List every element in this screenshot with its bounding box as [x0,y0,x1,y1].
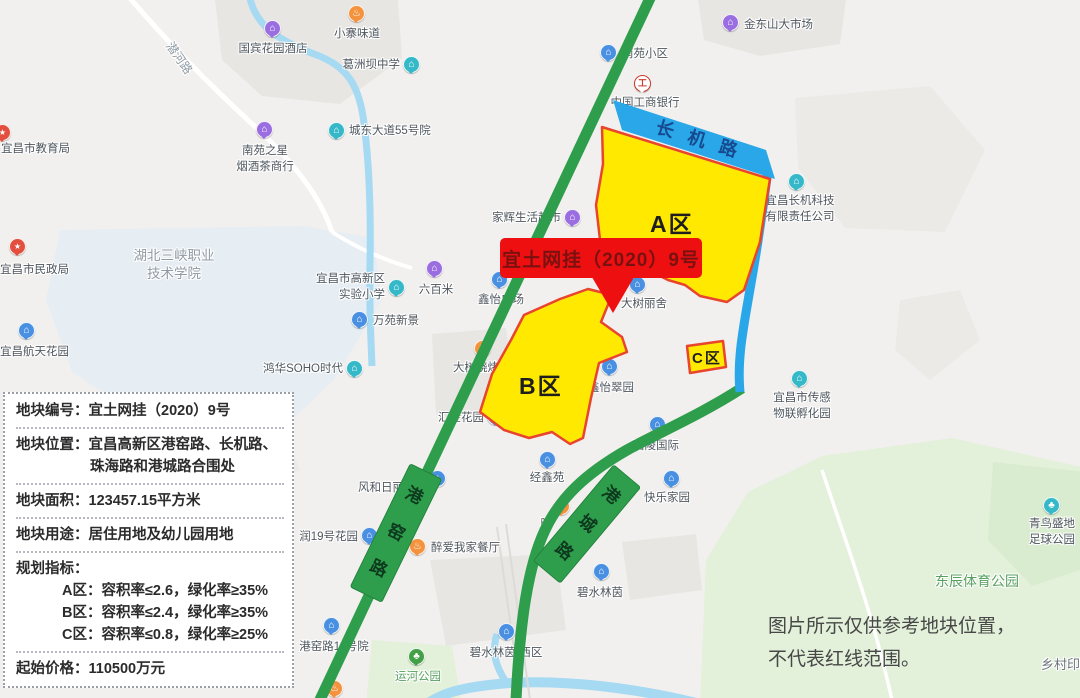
info-value: 宜土网挂（2020）9号 [89,403,231,419]
poi-pin-home[interactable] [426,260,443,277]
poi-label: 宜昌市教育局 [1,142,70,158]
info-label: 起始价格： [16,661,89,677]
poi-pin-home[interactable] [629,276,646,293]
poi-label: 青鸟盛地足球公园 [1029,517,1075,548]
info-row-0: 地块编号：宜土网挂（2020）9号 [16,395,284,429]
poi-pin-home[interactable] [256,121,273,138]
poi-label: 鑫怡广场 [478,293,524,309]
poi-pin-home[interactable] [388,279,405,296]
info-value: 宜昌高新区港窑路、长机路、 [89,437,278,453]
poi-label: 葛洲坝中学 [343,58,401,74]
poi-label: 晗 [541,517,553,533]
disclaimer-line: 不代表红线范围。 [768,643,1015,676]
info-value: 居住用地及幼儿园用地 [89,527,234,543]
poi-pin-home[interactable] [264,20,281,37]
poi-label: 港窑路11号院 [299,640,368,656]
info-row-5: 起始价格：110500万元 [16,653,284,685]
poi-pin-home[interactable] [601,358,618,375]
poi-pin-star[interactable] [0,124,11,141]
poi-pin-bank[interactable] [634,75,651,92]
poi-pin-park[interactable] [408,648,425,665]
poi-pin-food[interactable] [348,5,365,22]
info-label: 地块面积： [16,493,89,509]
poi-pin-food[interactable] [553,498,570,515]
poi-label: 金东山大市场 [744,18,813,34]
info-row-2: 地块面积：123457.15平方米 [16,485,284,519]
poi-pin-home[interactable] [323,617,340,634]
poi-label: 万苑新景 [373,314,419,330]
poi-pin-home[interactable] [593,563,610,580]
poi-label: 汇金花园 [438,411,484,427]
info-label: 地块位置： [16,437,89,453]
area-label: 潜河路 [162,39,196,78]
poi-label: 鑫怡翠园 [588,381,634,397]
poi-label: 六百米 [419,283,454,299]
poi-label: 大树烧烤 [453,361,499,377]
poi-pin-star[interactable] [9,238,26,255]
poi-pin-home[interactable] [487,408,504,425]
info-value: 123457.15平方米 [89,493,201,509]
poi-label: 经鑫苑 [530,471,565,487]
poi-pin-home[interactable] [722,14,739,31]
area-label: 湖北三峡职业技术学院 [134,247,215,283]
poi-pin-home[interactable] [600,44,617,61]
poi-label: 宜昌市传感物联孵化园 [773,391,831,422]
poi-label: 碧水林茵 [577,586,623,602]
disclaimer-line: 图片所示仅供参考地块位置， [768,610,1015,643]
land-callout[interactable]: 宜土网挂（2020）9号 [500,238,702,278]
poi-label: 南苑之星烟酒茶商行 [236,144,294,175]
poi-label: 醉爱我家餐厅 [431,541,500,557]
info-row-1: 地块位置：宜昌高新区港窑路、长机路、珠海路和港城路合围处 [16,429,284,485]
poi-label: 小寨味道 [334,27,380,43]
area-label: 东辰体育公园 [935,572,1019,591]
poi-label: 宜昌长机科技有限责任公司 [766,194,835,225]
poi-label: 宜昌市高新区实验小学 [316,272,385,303]
poi-label: 西陵国际 [633,439,679,455]
poi-pin-home[interactable] [791,370,808,387]
poi-pin-home[interactable] [663,470,680,487]
poi-pin-home[interactable] [346,360,363,377]
parcel-label-b: B区 [519,367,563,401]
poi-pin-home[interactable] [18,322,35,339]
area-label: 乡村印象 [1041,656,1080,674]
map-canvas[interactable]: 国宾花园酒店小寨味道葛洲坝中学宜昌市教育局南苑之星烟酒茶商行城东大道55号院宜昌… [0,0,1080,698]
poi-label: 家辉生活超市 [492,211,561,227]
poi-pin-home[interactable] [498,623,515,640]
poi-pin-home[interactable] [351,311,368,328]
poi-pin-home[interactable] [788,173,805,190]
poi-label: 碧水林茵-西区 [470,646,543,662]
parcel-label-c: C区 [692,347,722,368]
poi-label: 运河公园 [395,670,441,686]
poi-label: 城东大道55号院 [349,124,431,140]
info-label: 地块编号： [16,403,89,419]
parcel-label-a: A区 [650,205,694,239]
poi-pin-park[interactable] [1043,497,1060,514]
poi-label: 快乐家园 [644,491,690,507]
info-row-4: 规划指标：A区：容积率≤2.6，绿化率≥35%B区：容积率≤2.4，绿化率≥35… [16,553,284,653]
poi-label: 宜昌市民政局 [0,263,69,279]
info-value: 110500万元 [89,661,166,677]
poi-label: 大树丽舍 [621,297,667,313]
poi-label: 宜昌航天花园 [0,345,69,361]
poi-pin-food[interactable] [474,340,491,357]
poi-pin-home[interactable] [328,122,345,139]
info-row-3: 地块用途：居住用地及幼儿园用地 [16,519,284,553]
poi-label: 鸿华SOHO时代 [263,362,343,378]
land-info-panel: 地块编号：宜土网挂（2020）9号地块位置：宜昌高新区港窑路、长机路、珠海路和港… [3,392,294,688]
poi-pin-home[interactable] [564,209,581,226]
poi-pin-home[interactable] [649,416,666,433]
poi-label: 润19号花园 [299,530,358,546]
disclaimer-note: 图片所示仅供参考地块位置，不代表红线范围。 [768,610,1015,676]
info-label: 规划指标： [16,561,89,577]
poi-pin-home[interactable] [403,56,420,73]
poi-label: 国宾花园酒店 [239,42,308,58]
info-label: 地块用途： [16,527,89,543]
poi-pin-home[interactable] [539,451,556,468]
poi-pin-food[interactable] [326,680,343,697]
poi-label: 南苑小区 [622,47,668,63]
